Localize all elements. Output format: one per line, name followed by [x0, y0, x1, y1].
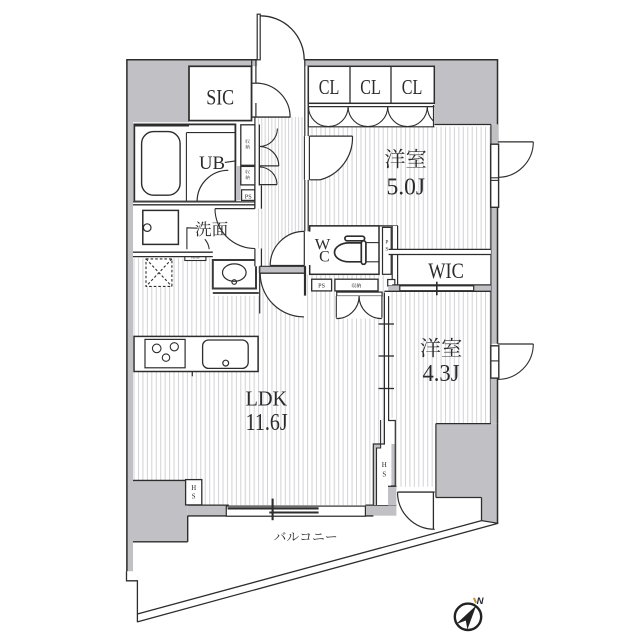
svg-text:SIC: SIC — [206, 85, 234, 110]
svg-text:UB: UB — [199, 153, 225, 174]
svg-text:WIC: WIC — [428, 258, 464, 283]
svg-text:CL: CL — [402, 75, 423, 99]
svg-text:H: H — [191, 485, 196, 492]
svg-text:S: S — [382, 470, 386, 478]
svg-text:LDK: LDK — [245, 386, 287, 410]
svg-text:C: C — [319, 249, 330, 266]
svg-text:CL: CL — [360, 75, 381, 99]
svg-text:5.0J: 5.0J — [387, 175, 426, 201]
svg-text:P: P — [385, 240, 388, 246]
svg-text:H: H — [382, 461, 387, 469]
svg-text:PS: PS — [245, 194, 252, 201]
svg-text:11.6J: 11.6J — [246, 410, 288, 436]
svg-text:4.3J: 4.3J — [423, 361, 460, 387]
svg-text:S: S — [385, 247, 388, 253]
svg-text:N: N — [477, 596, 485, 607]
svg-text:S: S — [192, 493, 196, 500]
svg-text:PS: PS — [318, 283, 325, 290]
svg-text:CL: CL — [319, 75, 340, 99]
